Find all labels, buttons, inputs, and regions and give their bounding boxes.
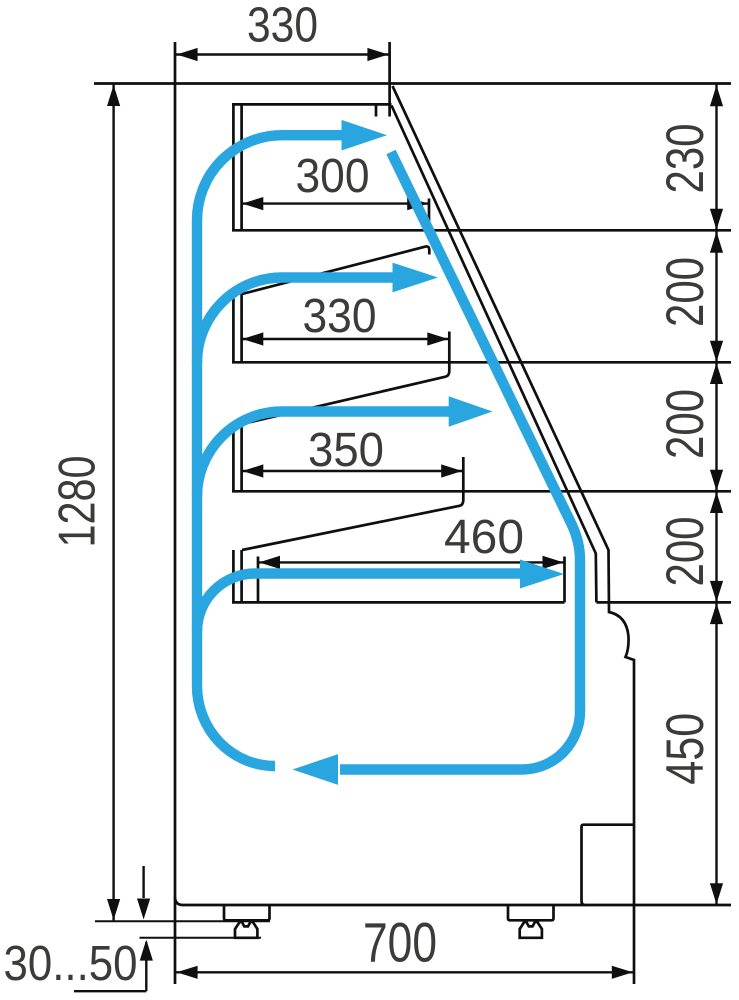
svg-text:300: 300: [296, 150, 370, 203]
svg-text:330: 330: [247, 0, 318, 53]
svg-text:350: 350: [308, 424, 384, 477]
svg-text:330: 330: [303, 290, 377, 343]
svg-text:1280: 1280: [49, 456, 107, 548]
svg-text:200: 200: [656, 517, 715, 587]
svg-text:200: 200: [656, 389, 715, 459]
svg-text:460: 460: [444, 511, 524, 564]
svg-text:30...50: 30...50: [4, 937, 138, 991]
svg-text:230: 230: [656, 124, 715, 194]
svg-text:700: 700: [363, 911, 437, 974]
svg-text:200: 200: [656, 257, 715, 327]
svg-text:450: 450: [656, 713, 715, 785]
